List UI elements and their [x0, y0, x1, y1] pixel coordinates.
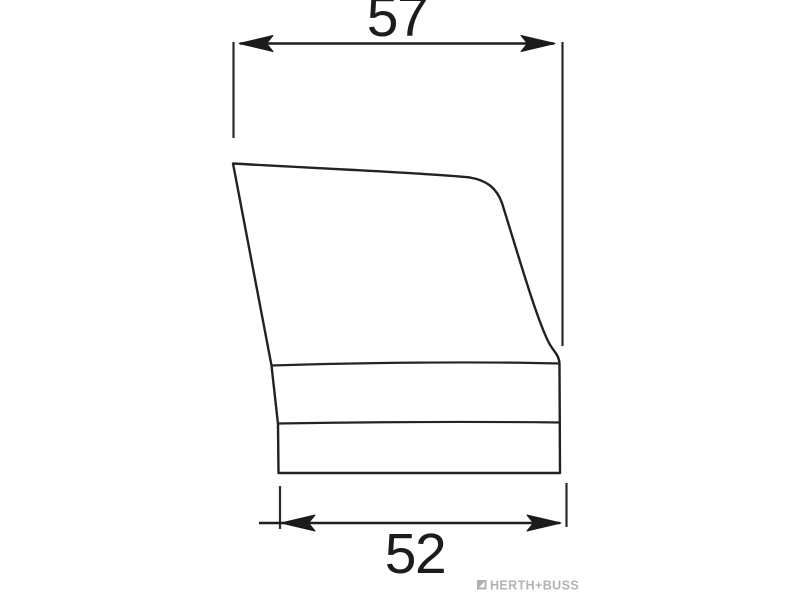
herth-buss-logo-icon: [477, 580, 487, 590]
band-separator-top: [272, 362, 560, 365]
part-profile: [233, 164, 560, 474]
part-outline: [233, 164, 560, 474]
technical-drawing-svg: 57 52 HERTH+BUSS: [0, 0, 800, 600]
dimension-bottom: 52: [259, 483, 567, 586]
drawing-canvas: 57 52 HERTH+BUSS: [0, 0, 800, 600]
dimension-value-top: 57: [367, 0, 427, 49]
brand-logo-text: HERTH+BUSS: [490, 579, 579, 593]
dimension-value-bottom: 52: [385, 522, 445, 586]
brand-logo: HERTH+BUSS: [477, 579, 579, 593]
band-separator-bottom: [278, 422, 560, 424]
